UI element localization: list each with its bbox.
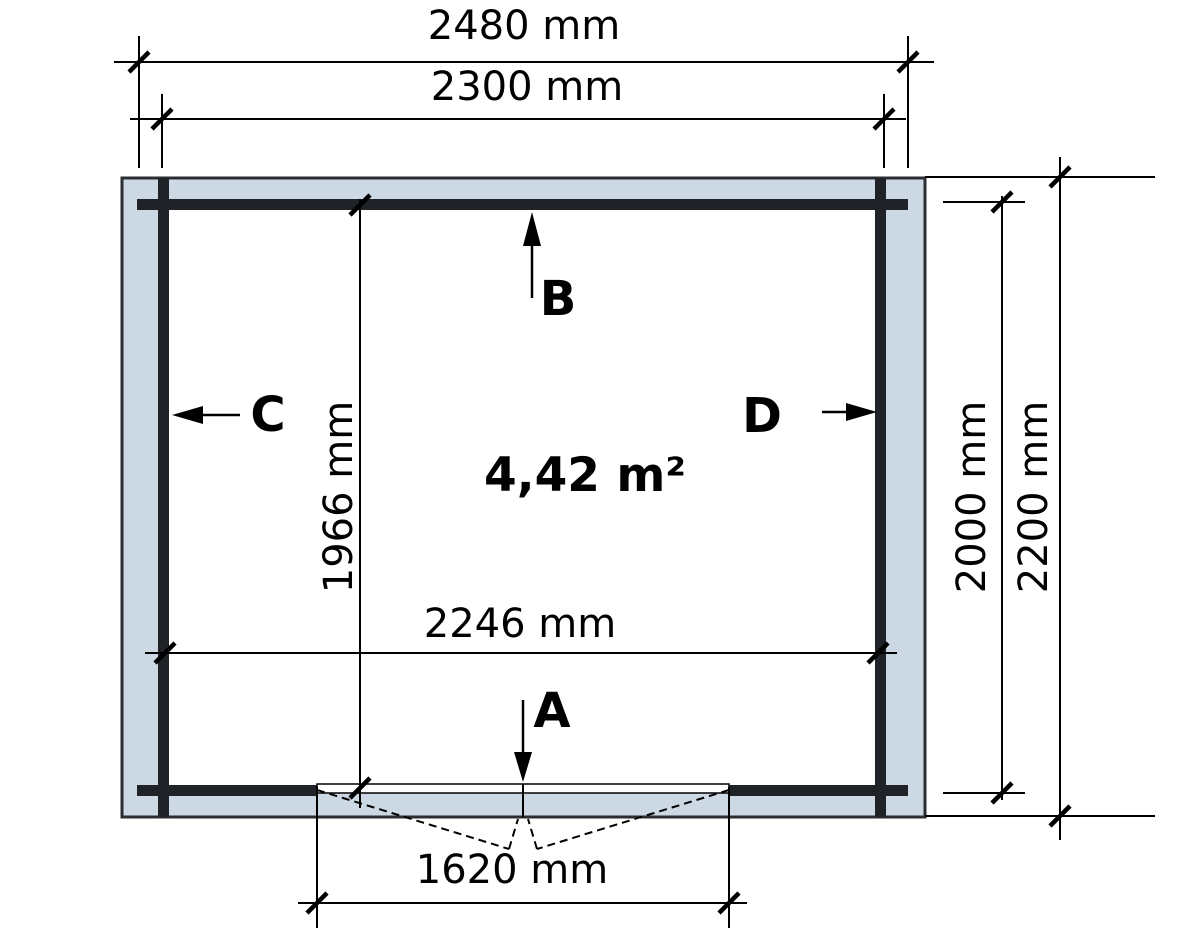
marker-d-label: D [742,388,782,444]
floor-area-label: 4,42 m² [484,448,686,503]
left-wall-log [158,178,169,817]
door-leaf-right-edge-line [528,819,537,849]
right-wall-log [875,178,886,817]
inner-depth-label: 2000 mm [949,401,995,593]
inner-width-label: 2246 mm [424,601,616,647]
door-width-label: 1620 mm [416,847,608,893]
floor-plan-drawing: 2480 mm 2300 mm 2246 mm 1966 mm 1620 mm [0,0,1200,939]
dimension-wall-log-width: 2300 mm [130,64,906,168]
marker-b-label: B [540,271,577,327]
wall-log-width-label: 2300 mm [431,64,623,110]
marker-a-label: A [533,683,570,739]
inner-depth-left-label: 1966 mm [316,401,362,593]
top-wall-log [137,199,908,210]
outer-depth-label: 2200 mm [1011,401,1057,593]
outer-width-label: 2480 mm [428,3,620,49]
door-leaf-left-edge-line [509,819,518,849]
marker-c-label: C [250,387,285,443]
floor-plan-page: 2480 mm 2300 mm 2246 mm 1966 mm 1620 mm [0,0,1200,939]
